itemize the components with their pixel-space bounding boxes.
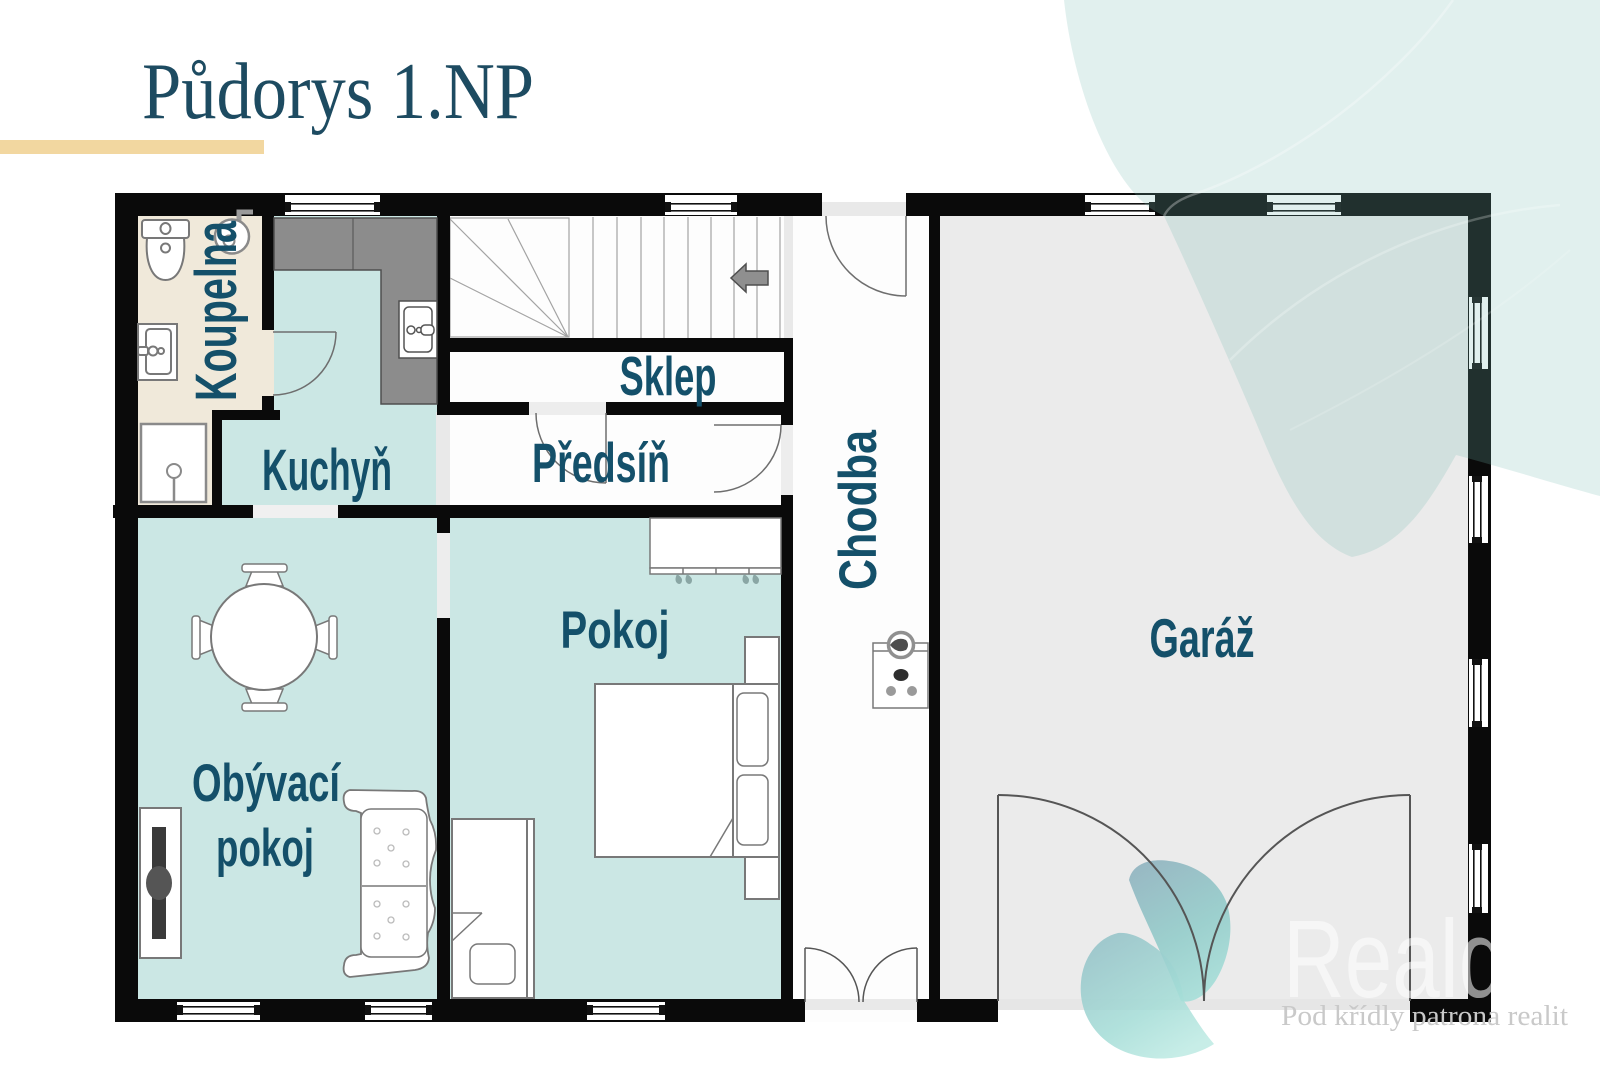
svg-text:Pokoj: Pokoj — [561, 601, 670, 660]
svg-text:Kuchyň: Kuchyň — [262, 438, 392, 503]
svg-text:Garáž: Garáž — [1150, 607, 1255, 669]
svg-text:Obývací: Obývací — [192, 754, 342, 813]
svg-text:Koupelna: Koupelna — [184, 220, 249, 401]
svg-text:Sklep: Sklep — [620, 345, 717, 407]
svg-text:pokoj: pokoj — [216, 819, 314, 878]
svg-text:Pod křídly patrona realit: Pod křídly patrona realit — [1281, 1001, 1568, 1032]
svg-text:Předsíň: Předsíň — [532, 431, 670, 494]
svg-text:Chodba: Chodba — [829, 430, 888, 590]
svg-text:Půdorys 1.NP: Půdorys 1.NP — [142, 48, 534, 136]
